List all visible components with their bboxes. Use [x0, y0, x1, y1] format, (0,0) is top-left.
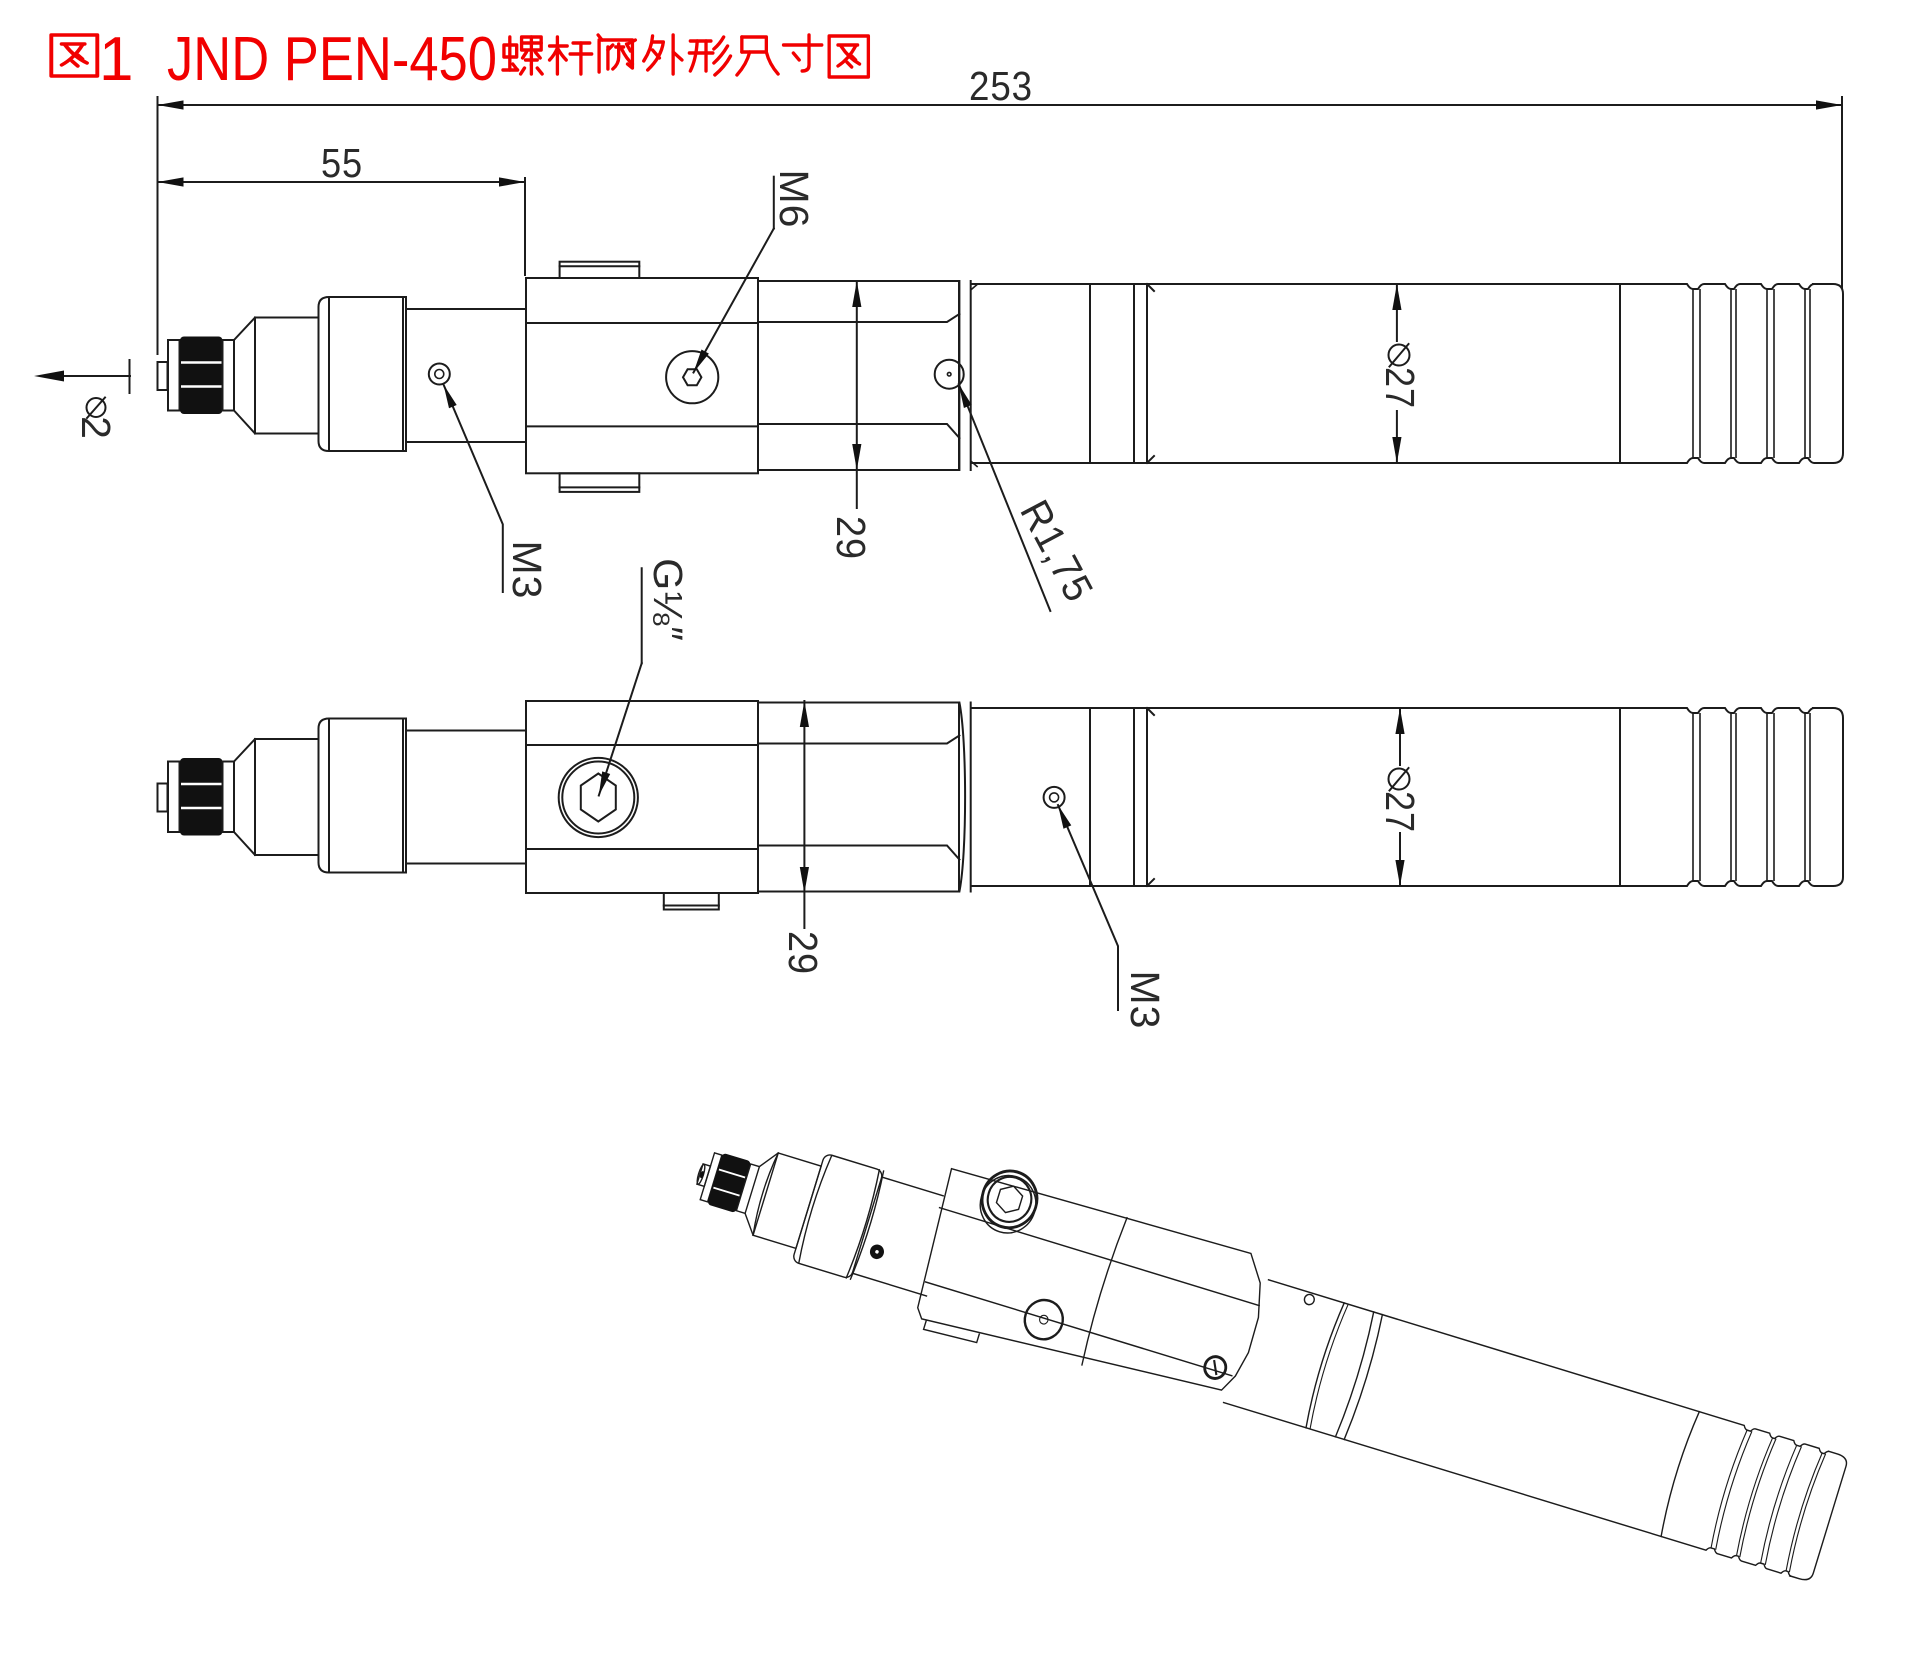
svg-text:JND PEN-450: JND PEN-450 [167, 25, 497, 94]
svg-text:29: 29 [828, 516, 874, 560]
svg-text:27: 27 [1377, 367, 1423, 409]
svg-text:M6: M6 [771, 170, 817, 229]
svg-text:M3: M3 [504, 541, 550, 600]
svg-text:G⅛″: G⅛″ [645, 558, 691, 642]
svg-text:27: 27 [1377, 791, 1423, 833]
svg-text:2: 2 [73, 416, 119, 440]
svg-text:1: 1 [99, 25, 133, 94]
svg-text:29: 29 [780, 931, 826, 975]
svg-text:M3: M3 [1122, 971, 1168, 1030]
svg-text:55: 55 [321, 140, 363, 186]
svg-text:253: 253 [969, 63, 1033, 109]
